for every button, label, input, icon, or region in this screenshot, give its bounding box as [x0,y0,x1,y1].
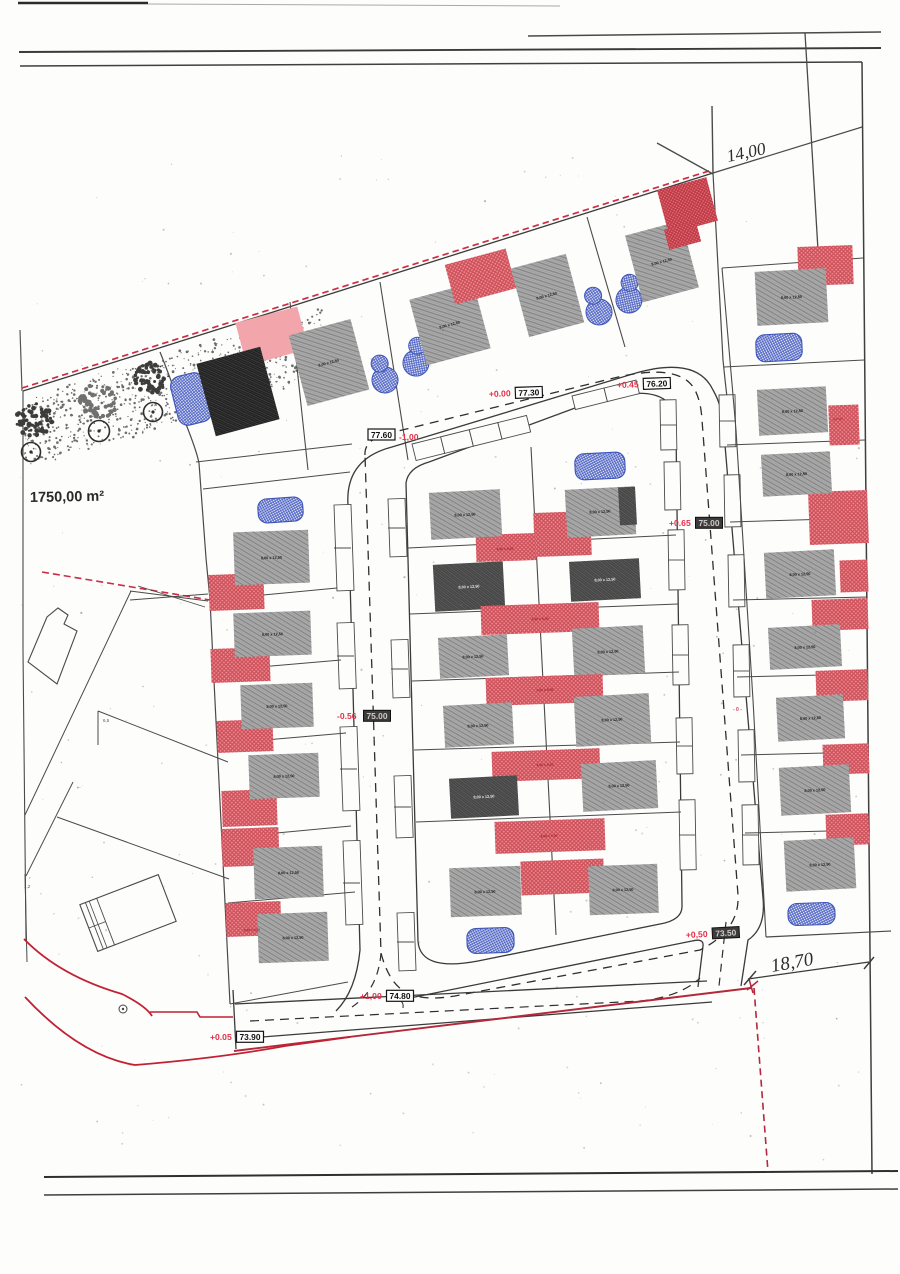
svg-text:4,50 x 9,00: 4,50 x 9,00 [496,547,513,552]
svg-text:6,5: 6,5 [103,718,110,723]
svg-text:+0.65: +0.65 [669,518,691,528]
svg-text:4,50 x 9,00: 4,50 x 9,00 [536,688,553,693]
svg-text:+1,00: +1,00 [360,991,382,1001]
svg-text:73.90: 73.90 [240,1032,261,1042]
svg-text:8,00 x 12,50: 8,00 x 12,50 [273,774,294,779]
svg-text:8,00 x 12,50: 8,00 x 12,50 [261,556,282,561]
svg-text:8,00 x 12,50: 8,00 x 12,50 [266,704,287,709]
svg-text:76.20: 76.20 [646,378,668,389]
svg-text:6,00 x 6,00: 6,00 x 6,00 [244,928,260,933]
svg-text:73.50: 73.50 [715,927,737,938]
svg-text:- 0 -: - 0 - [733,707,742,713]
svg-text:8,00 x 12,50: 8,00 x 12,50 [282,936,303,941]
svg-text:75.00: 75.00 [367,711,388,721]
svg-text:8,00 x 12,50: 8,00 x 12,50 [262,632,283,637]
svg-text:75.00: 75.00 [699,518,720,528]
svg-text:-1,00: -1,00 [399,432,419,442]
svg-text:1750,00 m²: 1750,00 m² [30,489,105,506]
svg-text:8,00 x 12,50: 8,00 x 12,50 [474,890,495,895]
svg-text:+0,50: +0,50 [686,929,708,940]
svg-text:4,50 x 9,00: 4,50 x 9,00 [536,763,553,768]
svg-text:4,50 x 9,00: 4,50 x 9,00 [540,834,557,839]
svg-text:-0.56: -0.56 [337,711,357,721]
svg-text:8,00 x 12,50: 8,00 x 12,50 [612,888,633,893]
svg-text:1,2: 1,2 [24,884,31,889]
svg-text:+0.45: +0.45 [617,379,639,390]
svg-text:+0.05: +0.05 [210,1032,232,1042]
svg-text:+0.00: +0.00 [489,388,511,399]
svg-text:4,50 x 9,00: 4,50 x 9,00 [531,617,548,622]
svg-text:garage: garage [833,416,844,421]
svg-text:74.80: 74.80 [390,991,411,1001]
svg-text:77.30: 77.30 [518,387,540,398]
svg-text:77.60: 77.60 [371,430,392,440]
svg-text:8,00 x 12,50: 8,00 x 12,50 [278,871,299,876]
